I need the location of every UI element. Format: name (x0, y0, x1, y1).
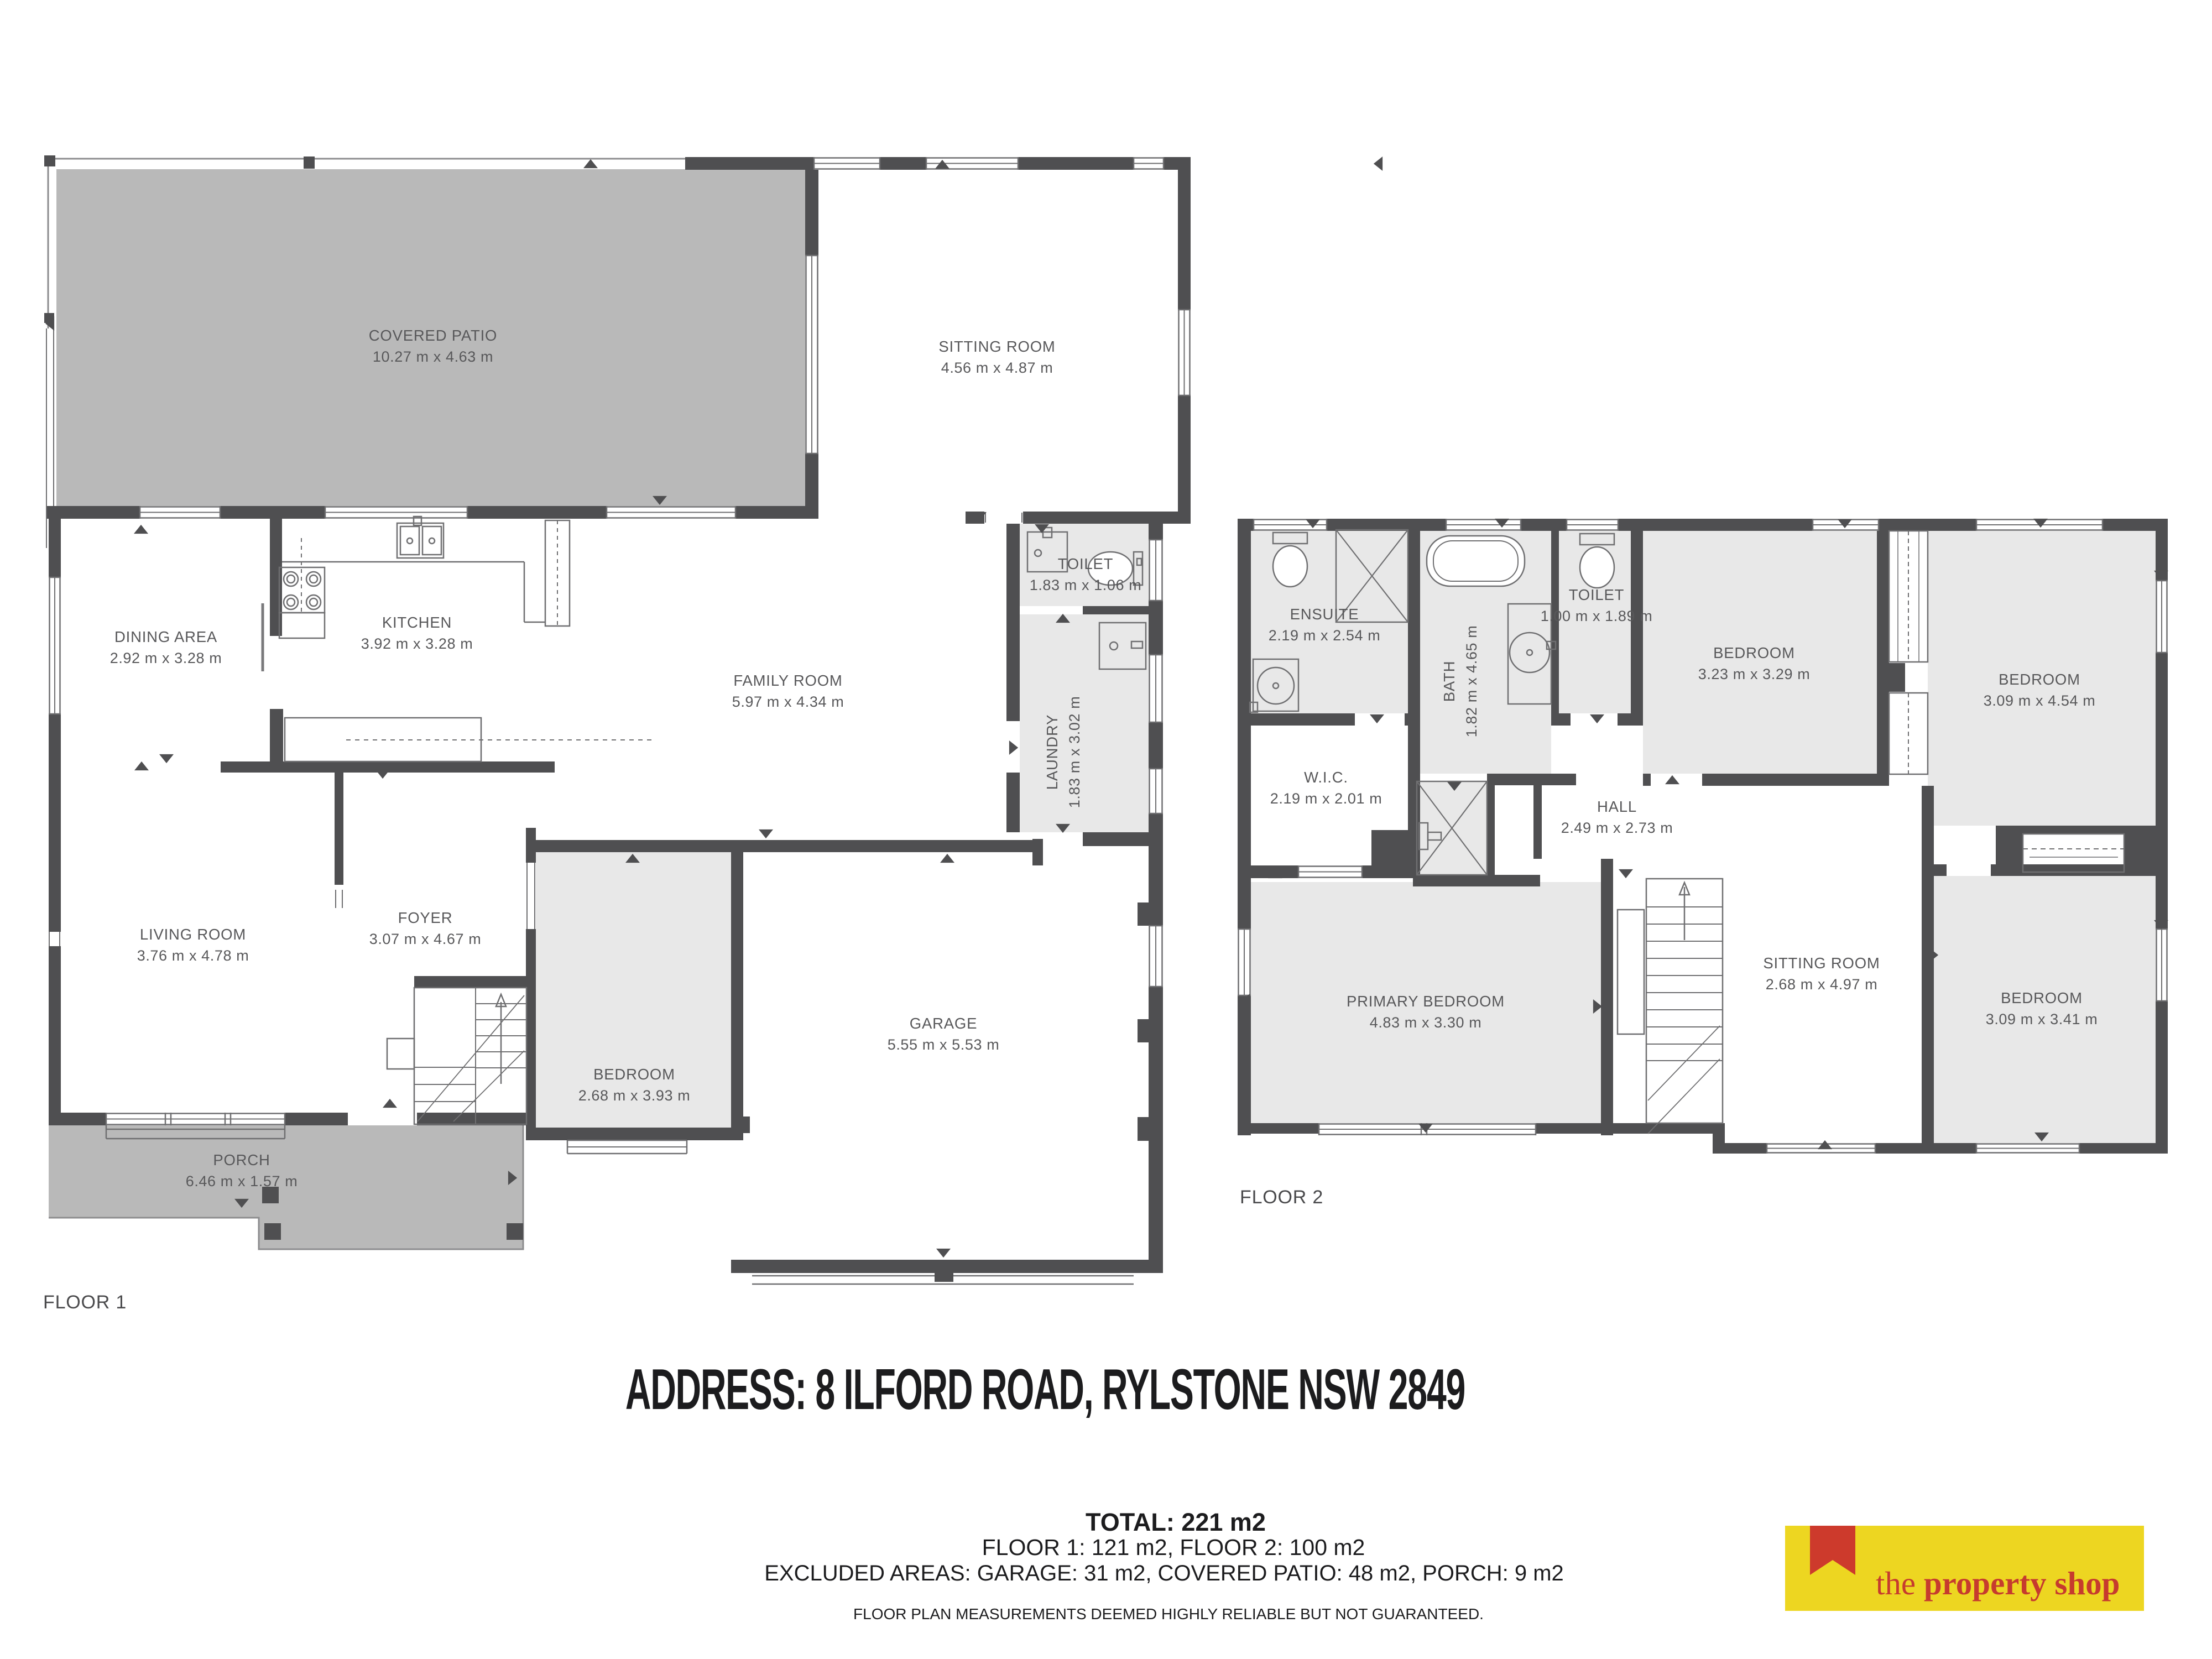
svg-text:BATH: BATH (1441, 661, 1458, 702)
svg-text:TOILET: TOILET (1569, 586, 1625, 603)
svg-text:2.49 m x 2.73 m: 2.49 m x 2.73 m (1561, 820, 1673, 836)
svg-text:EXCLUDED AREAS: GARAGE: 31 m2,: EXCLUDED AREAS: GARAGE: 31 m2, COVERED P… (764, 1561, 1564, 1585)
svg-text:3.09 m x 4.54 m: 3.09 m x 4.54 m (1984, 692, 2096, 709)
svg-text:PORCH: PORCH (213, 1151, 270, 1168)
svg-text:2.19 m x 2.54 m: 2.19 m x 2.54 m (1269, 627, 1381, 644)
svg-text:LAUNDRY: LAUNDRY (1044, 714, 1061, 790)
svg-text:DINING AREA: DINING AREA (114, 628, 217, 645)
svg-text:FLOOR 2: FLOOR 2 (1240, 1187, 1323, 1208)
svg-text:2.19 m x 2.01 m: 2.19 m x 2.01 m (1270, 790, 1383, 807)
svg-text:LIVING ROOM: LIVING ROOM (140, 926, 246, 943)
svg-text:HALL: HALL (1597, 798, 1637, 815)
svg-text:2.68 m x 4.97 m: 2.68 m x 4.97 m (1766, 976, 1878, 993)
svg-text:3.23 m x 3.29 m: 3.23 m x 3.29 m (1698, 666, 1811, 682)
svg-text:1.00 m x 1.89 m: 1.00 m x 1.89 m (1541, 608, 1653, 624)
svg-text:PRIMARY BEDROOM: PRIMARY BEDROOM (1347, 993, 1505, 1010)
svg-text:SITTING ROOM: SITTING ROOM (1763, 954, 1880, 972)
svg-text:FLOOR 1: 121 m2, FLOOR 2: 100: FLOOR 1: 121 m2, FLOOR 2: 100 m2 (982, 1535, 1365, 1560)
svg-text:6.46 m x 1.57 m: 6.46 m x 1.57 m (186, 1173, 298, 1190)
svg-text:FLOOR PLAN MEASUREMENTS DEEMED: FLOOR PLAN MEASUREMENTS DEEMED HIGHLY RE… (853, 1605, 1484, 1623)
svg-text:3.76 m x 4.78 m: 3.76 m x 4.78 m (137, 947, 249, 964)
svg-text:FAMILY ROOM: FAMILY ROOM (733, 672, 842, 689)
svg-text:3.07 m x 4.67 m: 3.07 m x 4.67 m (369, 931, 482, 947)
svg-text:2.92 m x 3.28 m: 2.92 m x 3.28 m (110, 650, 222, 666)
svg-text:3.09 m x 3.41 m: 3.09 m x 3.41 m (1986, 1011, 2098, 1027)
svg-text:BEDROOM: BEDROOM (593, 1066, 675, 1083)
svg-text:TOILET: TOILET (1058, 555, 1114, 572)
svg-text:SITTING ROOM: SITTING ROOM (938, 338, 1055, 355)
svg-text:BEDROOM: BEDROOM (1713, 644, 1795, 661)
svg-text:1.82 m x 4.65 m: 1.82 m x 4.65 m (1463, 625, 1480, 738)
svg-text:FLOOR 1: FLOOR 1 (43, 1292, 127, 1313)
svg-text:4.56 m x 4.87 m: 4.56 m x 4.87 m (941, 359, 1053, 376)
svg-text:10.27 m x 4.63 m: 10.27 m x 4.63 m (373, 348, 493, 365)
svg-text:BEDROOM: BEDROOM (2001, 989, 2083, 1006)
svg-text:1.83 m x 1.06 m: 1.83 m x 1.06 m (1030, 577, 1142, 593)
svg-text:4.83 m x 3.30 m: 4.83 m x 3.30 m (1370, 1014, 1482, 1031)
svg-text:ENSUITE: ENSUITE (1290, 606, 1359, 623)
svg-text:1.83 m x 3.02 m: 1.83 m x 3.02 m (1066, 696, 1083, 808)
svg-text:5.97 m x 4.34 m: 5.97 m x 4.34 m (732, 693, 844, 710)
svg-text:GARAGE: GARAGE (910, 1015, 977, 1032)
svg-text:FOYER: FOYER (398, 909, 453, 926)
svg-text:the property shop: the property shop (1876, 1565, 2120, 1601)
svg-text:BEDROOM: BEDROOM (1999, 671, 2080, 688)
svg-text:W.I.C.: W.I.C. (1304, 769, 1348, 786)
svg-text:KITCHEN: KITCHEN (382, 614, 452, 631)
svg-text:5.55 m x 5.53 m: 5.55 m x 5.53 m (888, 1036, 1000, 1053)
svg-text:3.92 m x 3.28 m: 3.92 m x 3.28 m (361, 635, 473, 652)
svg-text:2.68 m x 3.93 m: 2.68 m x 3.93 m (578, 1087, 691, 1104)
svg-text:TOTAL: 221 m2: TOTAL: 221 m2 (1086, 1508, 1266, 1536)
svg-text:ADDRESS: 8 ILFORD ROAD, RYLSTO: ADDRESS: 8 ILFORD ROAD, RYLSTONE NSW 284… (625, 1358, 1465, 1421)
svg-text:COVERED PATIO: COVERED PATIO (369, 327, 497, 344)
